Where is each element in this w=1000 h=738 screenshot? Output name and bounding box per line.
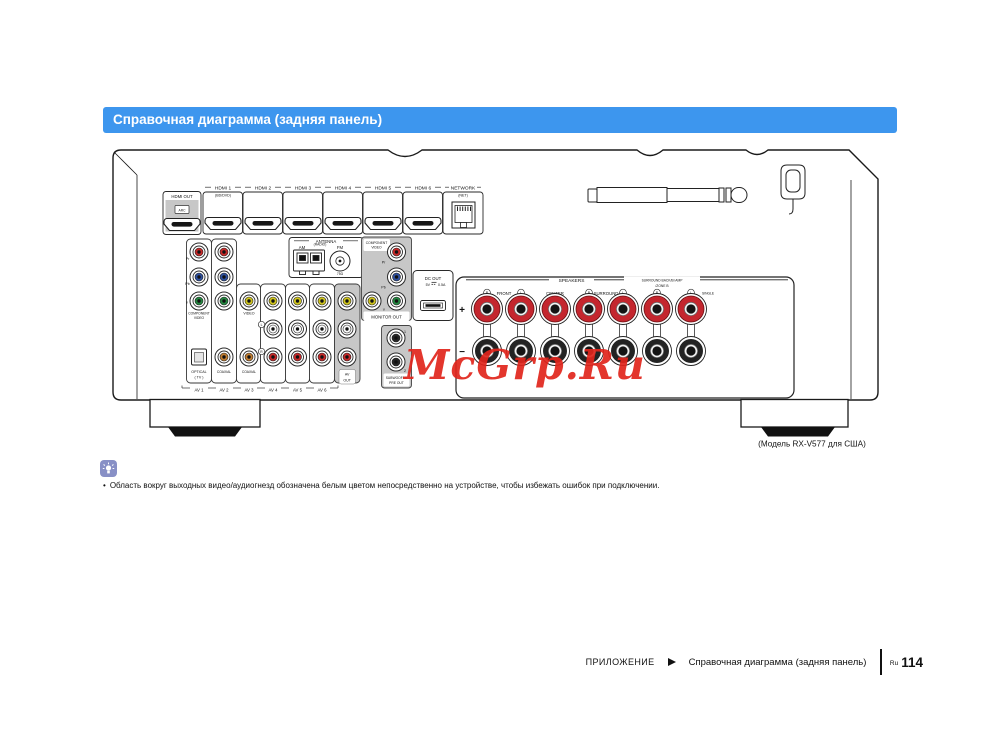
ethernet-jack [452, 202, 475, 228]
lightbulb-icon [102, 462, 115, 475]
monitor-out-label: MONITOR OUT [371, 314, 402, 319]
note-bullet: • [103, 481, 106, 490]
network-label: NETWORK [451, 186, 476, 192]
footer-page-number: 114 [901, 655, 923, 670]
fm-label: FM [337, 245, 344, 250]
usb-port [421, 301, 446, 311]
av6-label: AV 6 [318, 388, 328, 393]
dc-out-label: DC OUT [425, 276, 442, 281]
right-foot [741, 400, 848, 437]
surround-back-label-1: SURROUND BACK/BI AMP [642, 278, 684, 282]
hdmi4-label: HDMI 4 [335, 186, 352, 192]
av4-label: AV 4 [269, 388, 279, 393]
watermark: McGrp.Ru [404, 341, 646, 389]
footer-language: Ru [890, 660, 898, 667]
subwoofer-label-2: PRE OUT [389, 381, 404, 385]
footer-divider [880, 649, 882, 675]
radio-label: (RADIO) [314, 243, 327, 247]
av3-label: AV 3 [245, 388, 255, 393]
note-text-line: •Область вокруг выходных видео/аудиогнез… [103, 481, 659, 490]
fm-ohm-label: 75Ω [337, 272, 344, 276]
av2-label: AV 2 [220, 388, 230, 393]
right-arrowhead-icon [668, 658, 676, 666]
wireless-antenna [588, 188, 747, 203]
hdmi5-label: HDMI 5 [375, 186, 392, 192]
dc-volt-label: 5V [426, 283, 431, 287]
arc-label: ARC [179, 209, 187, 213]
surround-label: SURROUND [594, 291, 619, 296]
page-title: Справочная диаграмма (задняя панель) [113, 112, 382, 127]
component-label-2: VIDEO [194, 316, 205, 320]
hdmi1-label: HDMI 1 [215, 186, 232, 192]
note-icon [100, 460, 117, 477]
footer-section: ПРИЛОЖЕНИЕ [586, 657, 655, 667]
monitor-component-label-2: VIDEO [371, 246, 382, 250]
network-sub-label: (NET) [458, 194, 468, 198]
speakers-title: SPEAKERS [559, 278, 585, 284]
coaxial-label-av3: COAXIAL [242, 370, 256, 374]
note-text: Область вокруг выходных видео/аудиогнезд… [110, 481, 660, 490]
model-caption: (Модель RX-V577 для США) [758, 440, 866, 449]
hdmi-out-label: HDMI OUT [171, 194, 193, 199]
section-header-bar: Справочная диаграмма (задняя панель) [103, 107, 897, 133]
l-mark: L [261, 323, 263, 327]
fm-jack [330, 251, 350, 271]
single-label: SINGLE [702, 292, 715, 296]
hdmi2-label: HDMI 2 [255, 186, 272, 192]
monitor-component-label-1: COMPONENT [366, 241, 387, 245]
av5-label: AV 5 [293, 388, 303, 393]
av-out-label-1: AV [345, 373, 350, 377]
av1-label: AV 1 [195, 388, 205, 393]
optical-jack [192, 349, 207, 365]
hdmi6-label: HDMI 6 [415, 186, 432, 192]
monitor-pb-label: Pb [381, 286, 385, 290]
left-foot [150, 400, 260, 437]
dc-out-section: DC OUT 5V 0.5A [413, 271, 453, 321]
pb-label: Pb [185, 282, 189, 286]
front-label: FRONT [497, 291, 512, 296]
av-out-label-2: OUT [343, 379, 351, 383]
optical-label: OPTICAL [191, 370, 206, 374]
coaxial-jack-av2 [215, 348, 233, 366]
video-label: VIDEO [243, 312, 254, 316]
surround-back-label-2: /ZONE B [655, 284, 669, 288]
hdmi-out-cell: HDMI OUT ARC [163, 192, 201, 235]
dc-amp-label: 0.5A [438, 283, 446, 287]
monitor-out-section: COMPONENT VIDEO Pr Pb Y MONITOR OUT [362, 237, 412, 321]
optical-sub-label: ( TV ) [195, 376, 204, 380]
page-footer: ПРИЛОЖЕНИЕ Справочная диаграмма (задняя … [586, 647, 923, 677]
antenna-section: ANTENNA (RADIO) AM FM 75Ω [289, 238, 363, 278]
am-label: AM [299, 245, 306, 250]
hdmi-out-port [164, 219, 200, 231]
am-terminal [294, 250, 325, 275]
plus-label: + [459, 305, 465, 316]
hdmi1-sub-label: (BD/DVD) [215, 194, 231, 198]
component-label-1: COMPONENT [188, 312, 209, 316]
footer-title: Справочная диаграмма (задняя панель) [689, 657, 867, 668]
hdmi3-label: HDMI 3 [295, 186, 312, 192]
coaxial-label-av2: COAXIAL [217, 370, 231, 374]
coaxial-jack-av3 [240, 348, 258, 366]
